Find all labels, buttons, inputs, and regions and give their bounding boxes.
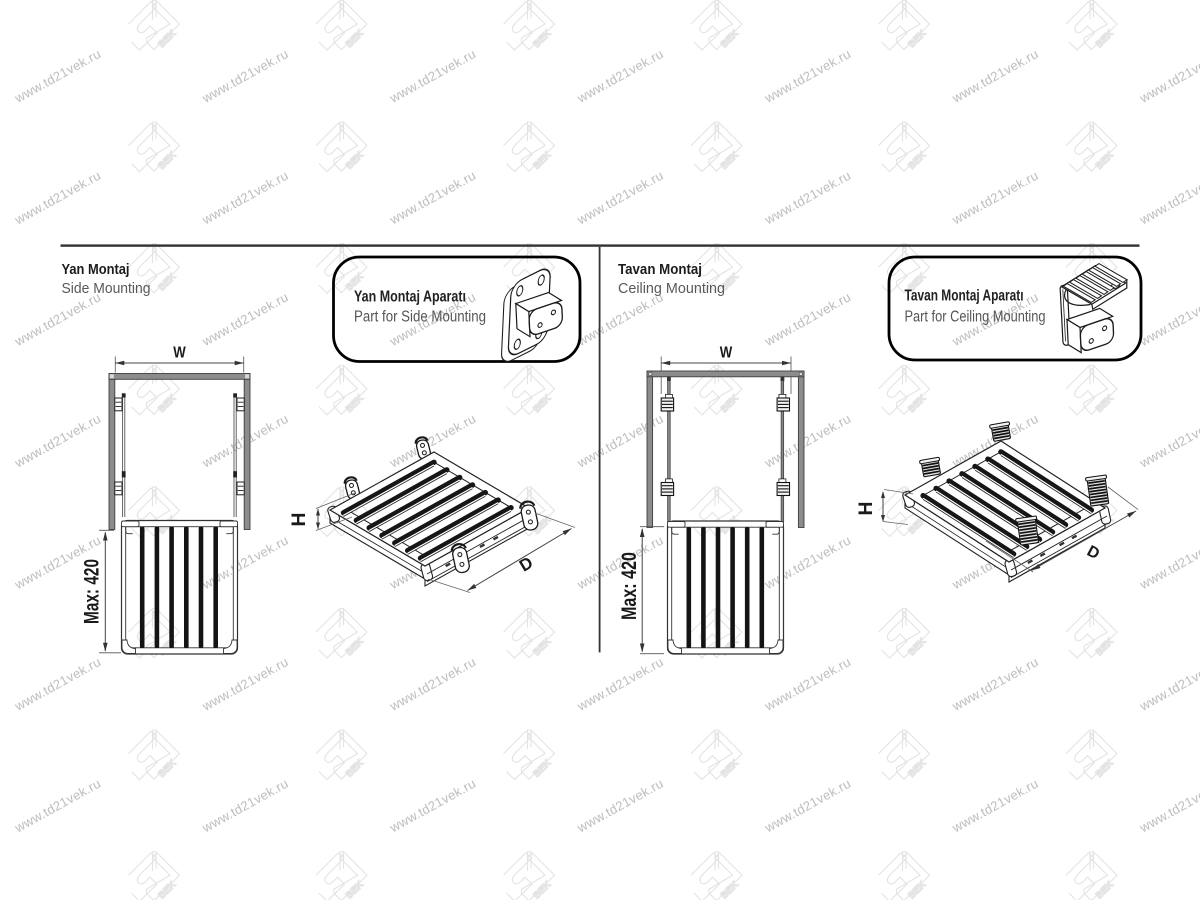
svg-text:Max: 420: Max: 420 [81,559,104,624]
svg-text:H: H [289,513,310,527]
svg-text:W: W [173,345,186,362]
svg-text:Ceiling Mounting: Ceiling Mounting [618,280,725,297]
svg-text:H: H [856,502,877,516]
svg-text:Tavan Montaj Aparatı: Tavan Montaj Aparatı [905,288,1024,305]
svg-text:W: W [720,345,733,362]
svg-text:Max: 420: Max: 420 [618,552,641,620]
svg-text:Part for Side Mounting: Part for Side Mounting [354,308,486,325]
svg-text:Part for Ceiling Mounting: Part for Ceiling Mounting [905,308,1046,325]
svg-text:Side Mounting: Side Mounting [62,280,151,297]
svg-text:Yan Montaj Aparatı: Yan Montaj Aparatı [354,289,466,306]
svg-text:Tavan Montaj: Tavan Montaj [618,261,702,278]
svg-text:Yan Montaj: Yan Montaj [62,261,130,278]
